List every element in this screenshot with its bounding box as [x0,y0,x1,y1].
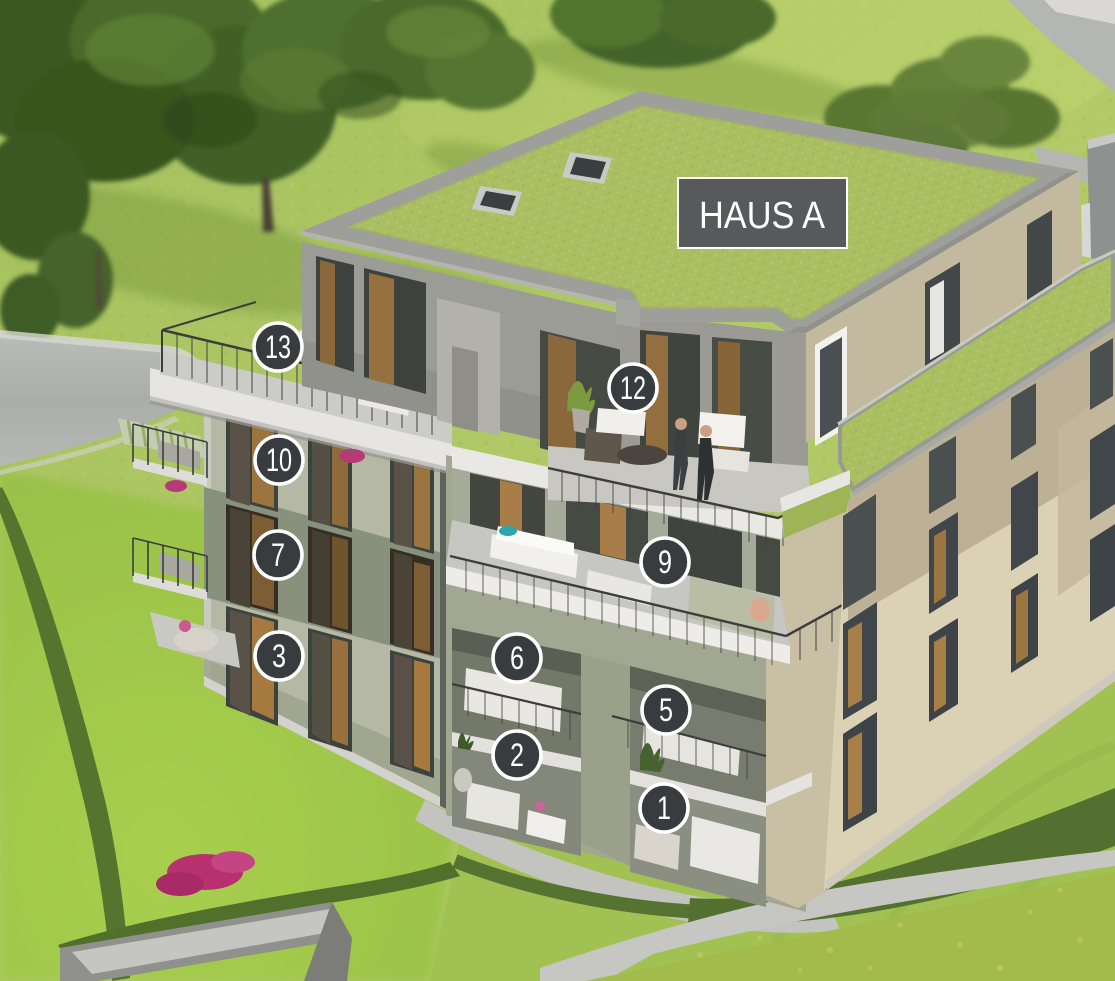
svg-text:13: 13 [265,329,291,365]
svg-text:9: 9 [658,544,672,580]
svg-text:6: 6 [510,640,524,676]
svg-text:10: 10 [266,442,292,478]
svg-text:12: 12 [620,370,646,406]
svg-text:HAUS A: HAUS A [699,195,826,237]
svg-text:5: 5 [659,692,673,728]
svg-text:2: 2 [510,737,524,773]
svg-text:7: 7 [271,537,285,573]
svg-text:1: 1 [657,790,671,826]
svg-text:3: 3 [272,638,286,674]
